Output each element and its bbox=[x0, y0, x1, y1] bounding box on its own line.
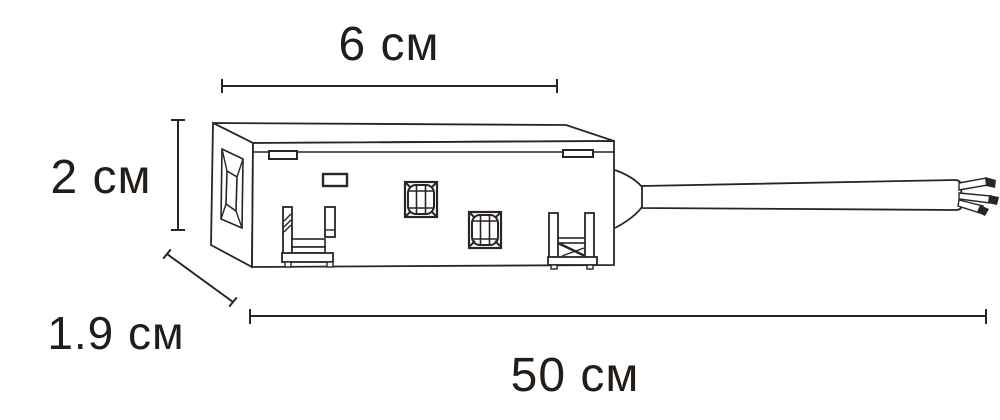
depth-dimension-label: 1.9 см bbox=[16, 310, 216, 356]
bracket-foot bbox=[551, 265, 557, 269]
grille-window-2 bbox=[469, 212, 501, 248]
cable-length-dimension-label: 50 см bbox=[475, 352, 675, 400]
bracket-base bbox=[548, 257, 597, 265]
top-notch-left bbox=[269, 151, 297, 159]
wire-top bbox=[959, 178, 988, 190]
bracket-crossbar bbox=[292, 239, 325, 247]
dimension-line-depth bbox=[163, 249, 237, 306]
stripped-wires bbox=[958, 177, 999, 216]
top-notch-right bbox=[563, 150, 593, 157]
front-slot bbox=[323, 174, 347, 186]
grille-window-1 bbox=[405, 182, 437, 217]
box-left-face bbox=[211, 123, 253, 267]
box-top-face bbox=[213, 123, 614, 143]
width-dimension-label: 6 см bbox=[239, 21, 539, 69]
dimension-line-width bbox=[222, 79, 557, 93]
diagram-canvas: 6 см 2 см 1.9 см 50 см bbox=[0, 0, 1000, 420]
dimension-line-cable-length bbox=[250, 309, 986, 324]
bracket-base bbox=[282, 253, 333, 262]
height-dimension-label: 2 см bbox=[1, 154, 201, 202]
cable-sheath bbox=[642, 180, 962, 210]
device-box bbox=[211, 123, 614, 269]
wire-top-tip bbox=[985, 177, 996, 188]
bracket-crossbar bbox=[558, 238, 585, 243]
bracket-foot bbox=[587, 265, 593, 269]
bracket-foot bbox=[327, 262, 333, 267]
cable-assembly bbox=[615, 170, 999, 228]
bracket-right-post bbox=[325, 207, 335, 237]
bracket-foot bbox=[285, 262, 291, 267]
